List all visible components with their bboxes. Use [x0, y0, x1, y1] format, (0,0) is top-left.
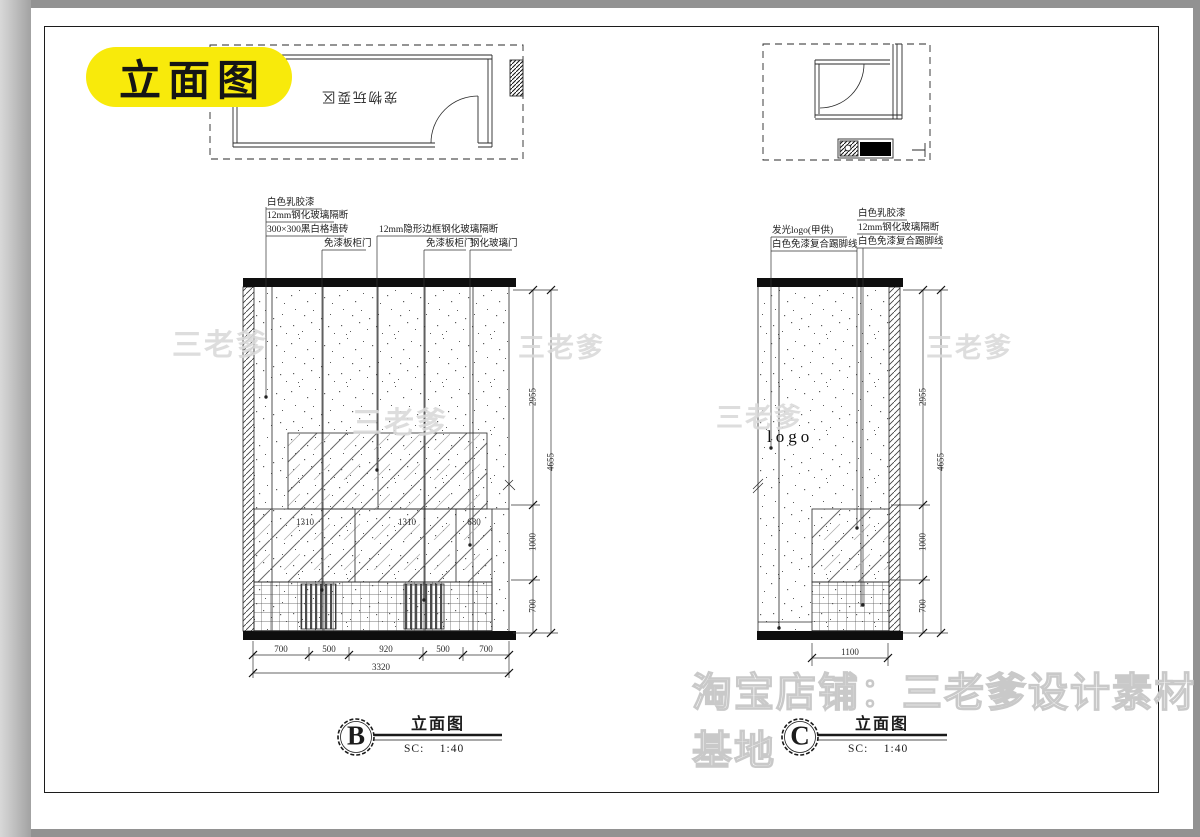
b-dim-h-5: 700 — [479, 645, 493, 654]
c-label-skirting-right: 白色免漆复合踢脚线 — [858, 238, 944, 248]
c-label-paint: 白色乳胶漆 — [858, 210, 906, 220]
c-label-skirting-left: 白色免漆复合踢脚线 — [772, 241, 858, 251]
drawing-sheet: 三老爹 三老爹 三老爹 三老爹 三老爹 淘宝店铺：三老爹设计素材基地 立面图 宠… — [0, 0, 1200, 837]
plan-room-label: 宠物玩耍区 — [320, 90, 398, 104]
b-dim-h-3: 920 — [379, 645, 393, 654]
c-label-glass12: 12mm钢化玻璃隔断 — [858, 224, 939, 234]
b-dim-inner-1: 1310 — [296, 518, 314, 527]
c-dim-v-700: 700 — [919, 599, 928, 613]
watermark-shop-banner: 淘宝店铺：三老爹设计素材基地 — [692, 660, 1200, 776]
b-dim-inner-3: 680 — [467, 518, 481, 527]
b-label-tile: 300×300黑白格墙砖 — [267, 226, 348, 236]
elevation-badge: 立面图 — [86, 47, 292, 107]
b-dim-h-4: 500 — [436, 645, 450, 654]
b-label-glass12: 12mm钢化玻璃隔断 — [267, 212, 348, 222]
c-label-logo: 发光logo(甲供) — [772, 227, 833, 237]
b-title-name: 立面图 — [411, 717, 465, 733]
c-dim-v-2955: 2955 — [919, 388, 928, 406]
b-label-cabinet-2: 免漆板柜门 — [426, 240, 474, 250]
c-title-letter: C — [790, 722, 810, 749]
watermark-diag-2: 三老爹 — [352, 398, 448, 442]
watermark-diag-3: 三老爹 — [518, 326, 605, 365]
b-dim-h-1: 700 — [274, 645, 288, 654]
b-dim-v-2955: 2955 — [529, 388, 538, 406]
watermark-diag-1: 三老爹 — [172, 320, 268, 364]
b-label-glass-door: 钢化玻璃门 — [470, 240, 518, 250]
b-dim-v-1000: 1000 — [529, 533, 538, 551]
b-dim-h-2: 500 — [322, 645, 336, 654]
c-dim-v-total: 4655 — [937, 453, 946, 471]
c-dim-v-1000: 1000 — [919, 533, 928, 551]
badge-label: 立面图 — [112, 47, 266, 108]
b-title-scale: SC: 1:40 — [404, 744, 464, 756]
c-title-name: 立面图 — [855, 717, 909, 733]
b-dim-v-700: 700 — [529, 599, 538, 613]
c-title-scale: SC: 1:40 — [848, 744, 908, 756]
c-dim-h-1100: 1100 — [841, 648, 859, 657]
c-wall-logo-text: logo — [767, 428, 813, 445]
b-label-paint: 白色乳胶漆 — [267, 199, 315, 209]
viewer-left-edge — [0, 0, 31, 837]
b-label-hidden-frame: 12mm隐形边框钢化玻璃隔断 — [379, 226, 498, 236]
b-dim-v-total: 4655 — [547, 453, 556, 471]
b-dim-inner-2: 1310 — [398, 518, 416, 527]
b-label-cabinet-1: 免漆板柜门 — [324, 240, 372, 250]
b-title-letter: B — [347, 722, 365, 749]
b-dim-h-total: 3320 — [372, 663, 390, 672]
watermark-diag-5: 三老爹 — [926, 326, 1013, 365]
